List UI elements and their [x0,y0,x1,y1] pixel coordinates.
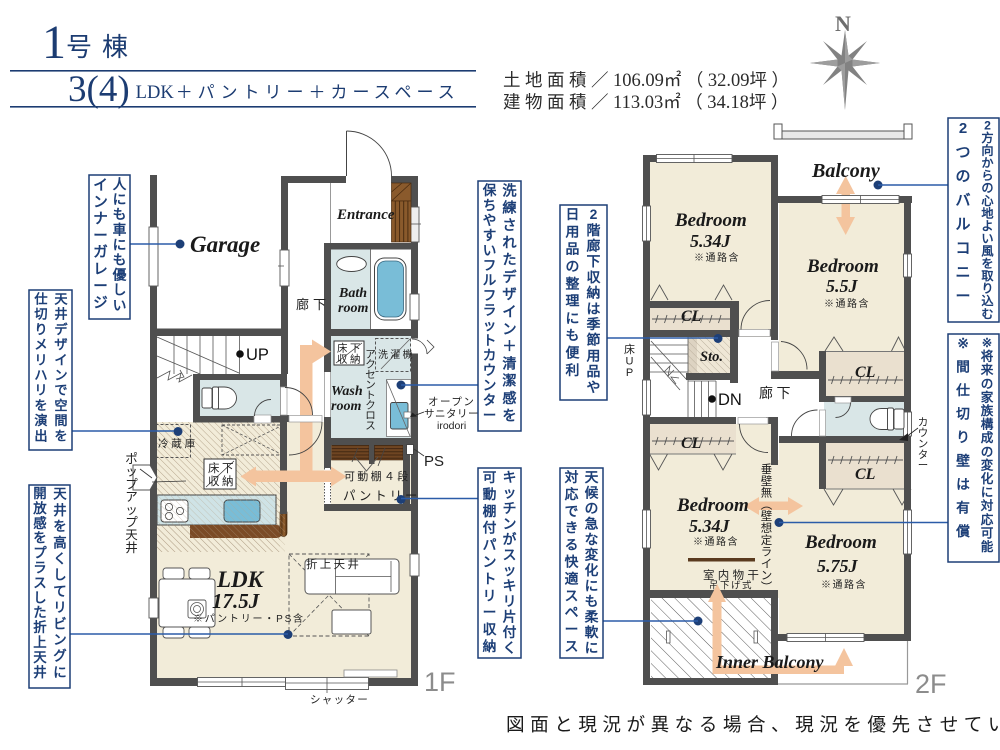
svg-text:洗濯機: 洗濯機 [378,348,415,361]
svg-text:シャッター: シャッター [310,694,369,706]
svg-text:保ちやすいフルフラットカウンター: 保ちやすいフルフラットカウンター [482,182,497,423]
svg-text:Balcony: Balcony [811,160,880,182]
svg-text:5.34J: 5.34J [689,516,731,536]
svg-text:収納: 収納 [337,353,363,366]
svg-text:Wash: Wash [331,384,363,399]
svg-text:1F: 1F [424,667,456,697]
svg-text:Entrance: Entrance [336,207,395,223]
svg-text:Bedroom: Bedroom [806,256,879,277]
svg-text:キッチンがスッキリ片付く: キッチンがスッキリ片付く [503,470,517,656]
svg-text:床下: 床下 [208,461,236,475]
svg-text:CL: CL [855,364,876,381]
svg-text:PS: PS [424,453,444,470]
svg-text:Bedroom: Bedroom [674,210,747,231]
svg-text:※間仕切り壁は有償: ※間仕切り壁は有償 [955,336,970,539]
svg-text:Garage: Garage [190,232,260,257]
svg-text:可動棚４段: 可動棚４段 [344,469,411,483]
svg-text:5.5J: 5.5J [826,276,859,296]
svg-text:2方向からの心地よい風を取り込む: 2方向からの心地よい風を取り込む [981,119,994,321]
svg-text:インナーガレージ: インナーガレージ [93,178,108,312]
svg-text:図面と現況が異なる場合、現況を優先させていただきます。: 図面と現況が異なる場合、現況を優先させていただきます。 [506,714,1000,735]
svg-text:冷蔵庫: 冷蔵庫 [158,437,198,450]
svg-text:サニタリー: サニタリー [424,408,479,420]
svg-text:5.75J: 5.75J [817,556,859,576]
svg-text:2F: 2F [915,669,947,699]
svg-text:DN: DN [718,391,742,409]
svg-text:Bedroom: Bedroom [676,495,749,516]
svg-text:5.34J: 5.34J [690,231,732,251]
svg-text:可動棚付パントリー収納: 可動棚付パントリー収納 [483,470,497,654]
svg-text:収納: 収納 [208,475,236,488]
svg-text:CL: CL [681,308,702,325]
svg-text:Sto.: Sto. [700,349,723,365]
svg-text:垂壁無︵壁想定ライン︶: 垂壁無︵壁想定ライン︶ [761,463,773,594]
svg-text:開放感をプラスした折上天井: 開放感をプラスした折上天井 [32,486,47,680]
svg-text:※通路含: ※通路含 [693,535,739,548]
svg-text:room: room [338,301,368,316]
svg-text:※パントリー・PS含: ※パントリー・PS含 [193,612,305,625]
svg-text:カウンター: カウンター [918,416,929,471]
svg-text:対応できる快適スペース: 対応できる快適スペース [564,469,579,654]
svg-text:room: room [331,399,361,414]
svg-text:人にも車にも優しい: 人にも車にも優しい [112,177,127,313]
svg-text:※通路含: ※通路含 [824,297,870,310]
svg-text:パントリー: パントリー [343,489,420,503]
svg-text:折上天井: 折上天井 [306,557,361,571]
svg-text:N: N [835,11,851,36]
svg-text:ポップアップ天井: ポップアップ天井 [125,452,138,555]
svg-text:irodori: irodori [437,420,466,432]
svg-text:土地面積／106.09㎡（32.09坪）: 土地面積／106.09㎡（32.09坪） [503,70,794,91]
svg-text:UP: UP [246,346,269,364]
svg-text:仕切りメリハリを演出: 仕切りメリハリを演出 [33,291,47,444]
svg-text:日用品の整理にも便利: 日用品の整理にも便利 [566,206,581,378]
svg-text:Inner Balcony: Inner Balcony [715,652,825,672]
svg-text:17.5J: 17.5J [212,589,261,613]
svg-text:天候の急な変化にも柔軟に: 天候の急な変化にも柔軟に [584,470,599,656]
svg-text:Bath: Bath [338,286,367,301]
svg-text:※将来の家族構成の変化に対応可能: ※将来の家族構成の変化に対応可能 [980,336,994,554]
svg-text:天井を高くしてリビングに: 天井を高くしてリビングに [53,487,67,680]
svg-text:建物面積／113.03㎡（34.18坪）: 建物面積／113.03㎡（34.18坪） [503,92,793,113]
svg-text:アクセントクロス: アクセントクロス [365,349,376,432]
svg-text:2階廊下収納は季節用品や: 2階廊下収納は季節用品や [586,206,601,395]
svg-text:天井デザインで空間を: 天井デザインで空間を [54,292,68,444]
svg-text:廊下: 廊下 [759,385,794,401]
svg-text:CL: CL [855,466,876,483]
svg-text:CL: CL [681,435,702,452]
svg-text:※通路含: ※通路含 [694,251,740,264]
svg-text:廊下: 廊下 [296,297,330,312]
svg-text:オープン: オープン [428,396,475,408]
svg-text:※通路含: ※通路含 [821,578,867,591]
svg-text:Bedroom: Bedroom [804,532,877,553]
